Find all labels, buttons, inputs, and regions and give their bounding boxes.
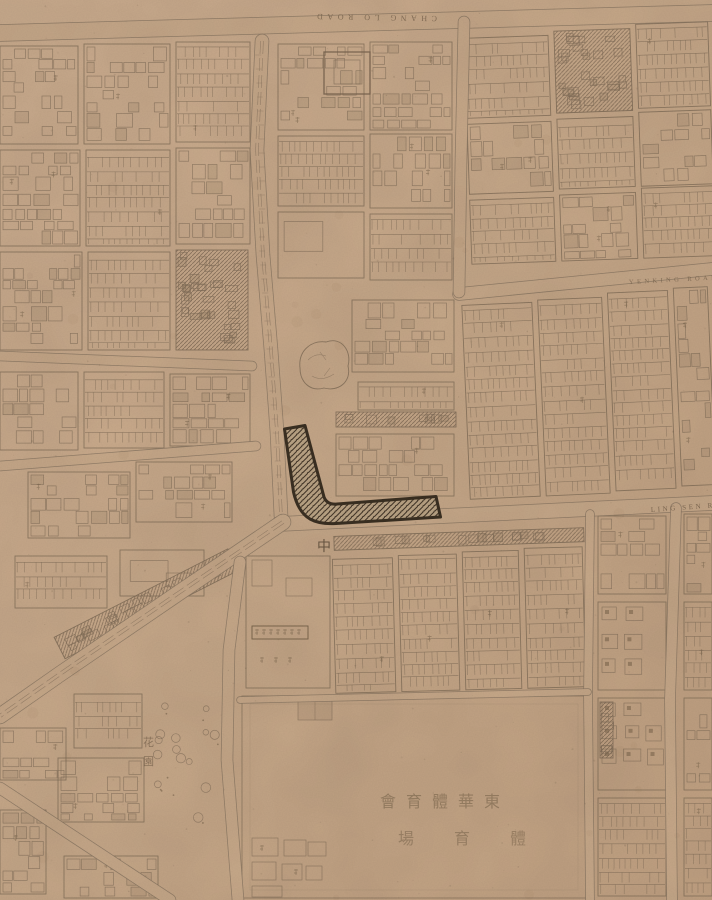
map-scan-container: CHANG LO ROADYENKING ROADLING SEN ROAD中會…	[0, 0, 712, 900]
city-map: CHANG LO ROADYENKING ROADLING SEN ROAD中會…	[0, 0, 712, 900]
paper-grain-overlay	[0, 0, 712, 900]
